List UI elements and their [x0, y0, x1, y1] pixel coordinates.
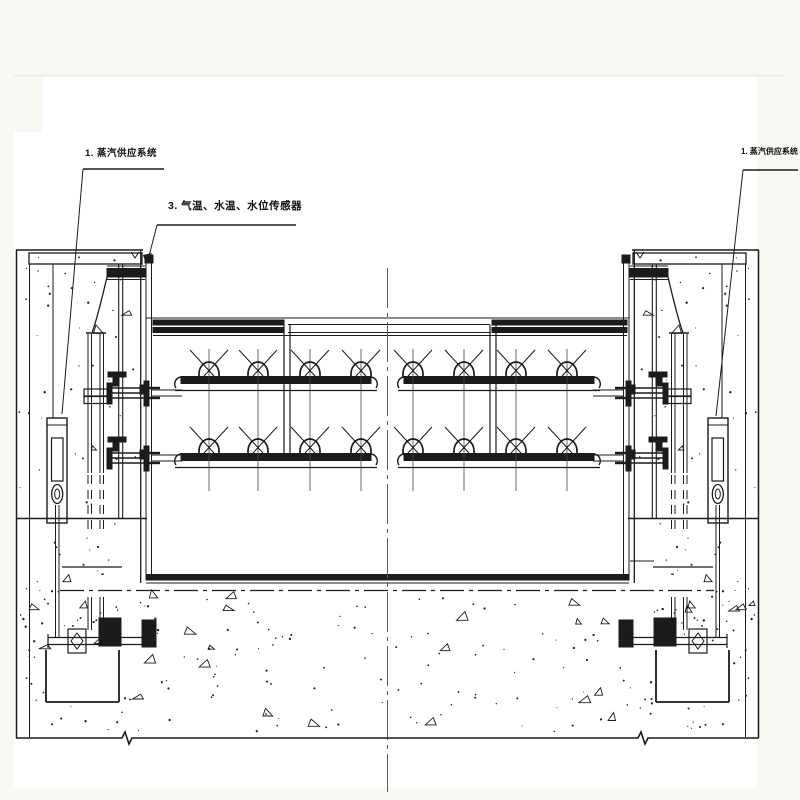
- engineering-drawing: 1. 蒸汽供应系统 3. 气温、水温、水位传感器 1. 蒸汽供应系统: [0, 0, 800, 800]
- label-sensors: 3. 气温、水温、水位传感器: [168, 199, 302, 212]
- pipe-elbow: [99, 618, 121, 646]
- label-steam-supply-right: 1. 蒸汽供应系统: [741, 146, 798, 156]
- drawing-paper: [14, 77, 757, 787]
- steam-inlet-stub: [107, 269, 145, 278]
- label-steam-supply-left: 1. 蒸汽供应系统: [85, 147, 157, 159]
- margin-corner: [14, 77, 42, 132]
